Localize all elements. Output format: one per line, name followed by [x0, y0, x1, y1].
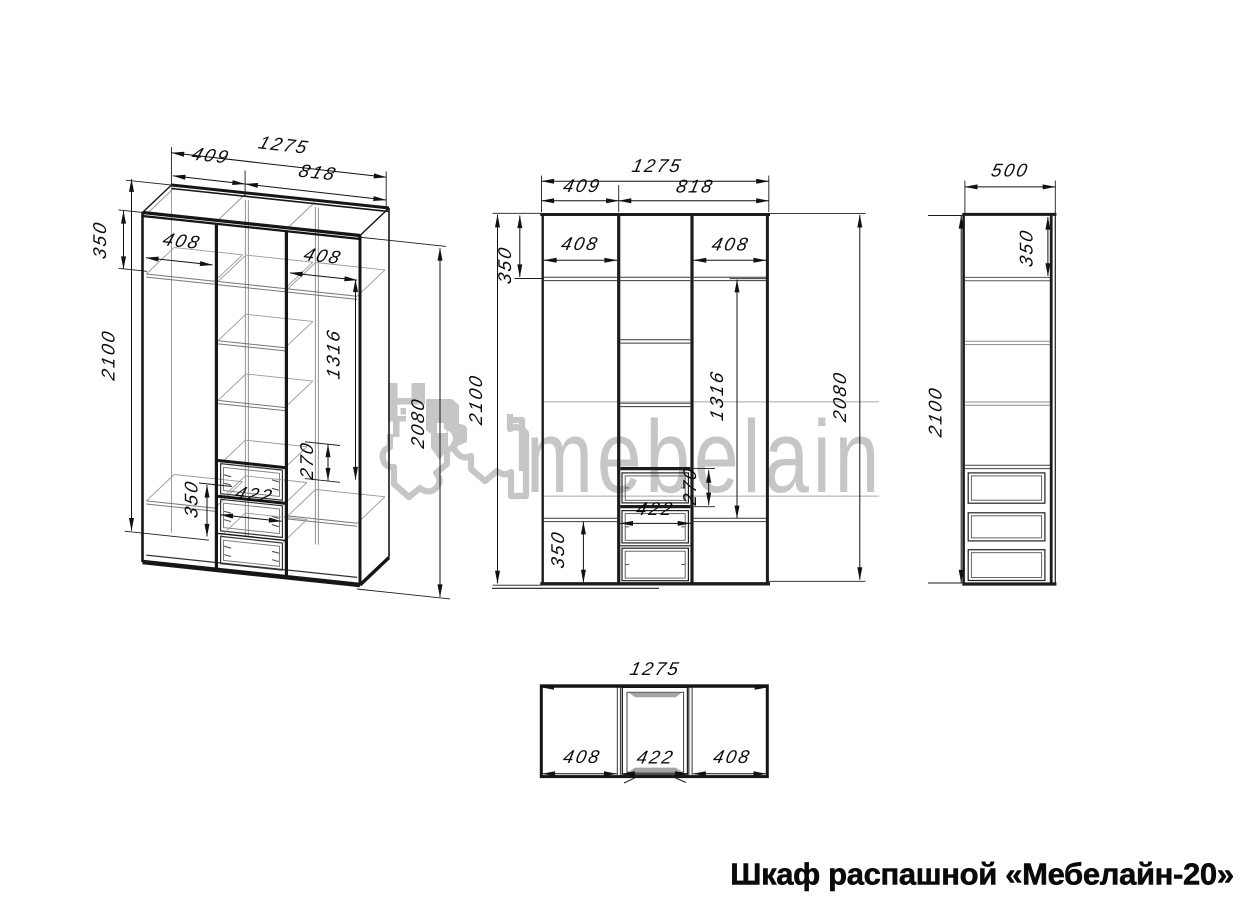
svg-text:2100: 2100: [925, 384, 946, 439]
svg-text:500: 500: [989, 160, 1031, 181]
svg-text:409: 409: [561, 175, 603, 196]
svg-text:818: 818: [296, 160, 340, 184]
svg-text:408: 408: [559, 233, 601, 254]
svg-text:409: 409: [189, 143, 233, 167]
svg-text:408: 408: [711, 746, 753, 767]
svg-text:350: 350: [89, 219, 110, 261]
svg-text:2080: 2080: [407, 395, 428, 450]
svg-text:408: 408: [561, 746, 603, 767]
svg-text:408: 408: [160, 229, 204, 253]
svg-text:350: 350: [547, 528, 568, 570]
svg-text:1275: 1275: [630, 155, 684, 176]
svg-text:422: 422: [233, 482, 277, 506]
svg-text:408: 408: [301, 244, 345, 268]
svg-text:2100: 2100: [98, 327, 119, 382]
svg-text:270: 270: [679, 465, 700, 508]
svg-text:2100: 2100: [465, 372, 486, 427]
svg-text:422: 422: [635, 747, 677, 768]
svg-text:422: 422: [634, 498, 676, 519]
svg-text:270: 270: [296, 439, 317, 482]
svg-text:2080: 2080: [829, 369, 850, 424]
svg-text:1316: 1316: [706, 368, 727, 422]
svg-text:350: 350: [181, 478, 202, 520]
svg-text:350: 350: [1016, 227, 1037, 269]
svg-text:1275: 1275: [628, 658, 682, 679]
svg-text:Шкаф распашной «Мебелайн-20»: Шкаф распашной «Мебелайн-20»: [730, 857, 1233, 892]
svg-text:408: 408: [710, 234, 752, 255]
svg-text:1316: 1316: [323, 326, 344, 380]
svg-text:818: 818: [674, 176, 716, 197]
